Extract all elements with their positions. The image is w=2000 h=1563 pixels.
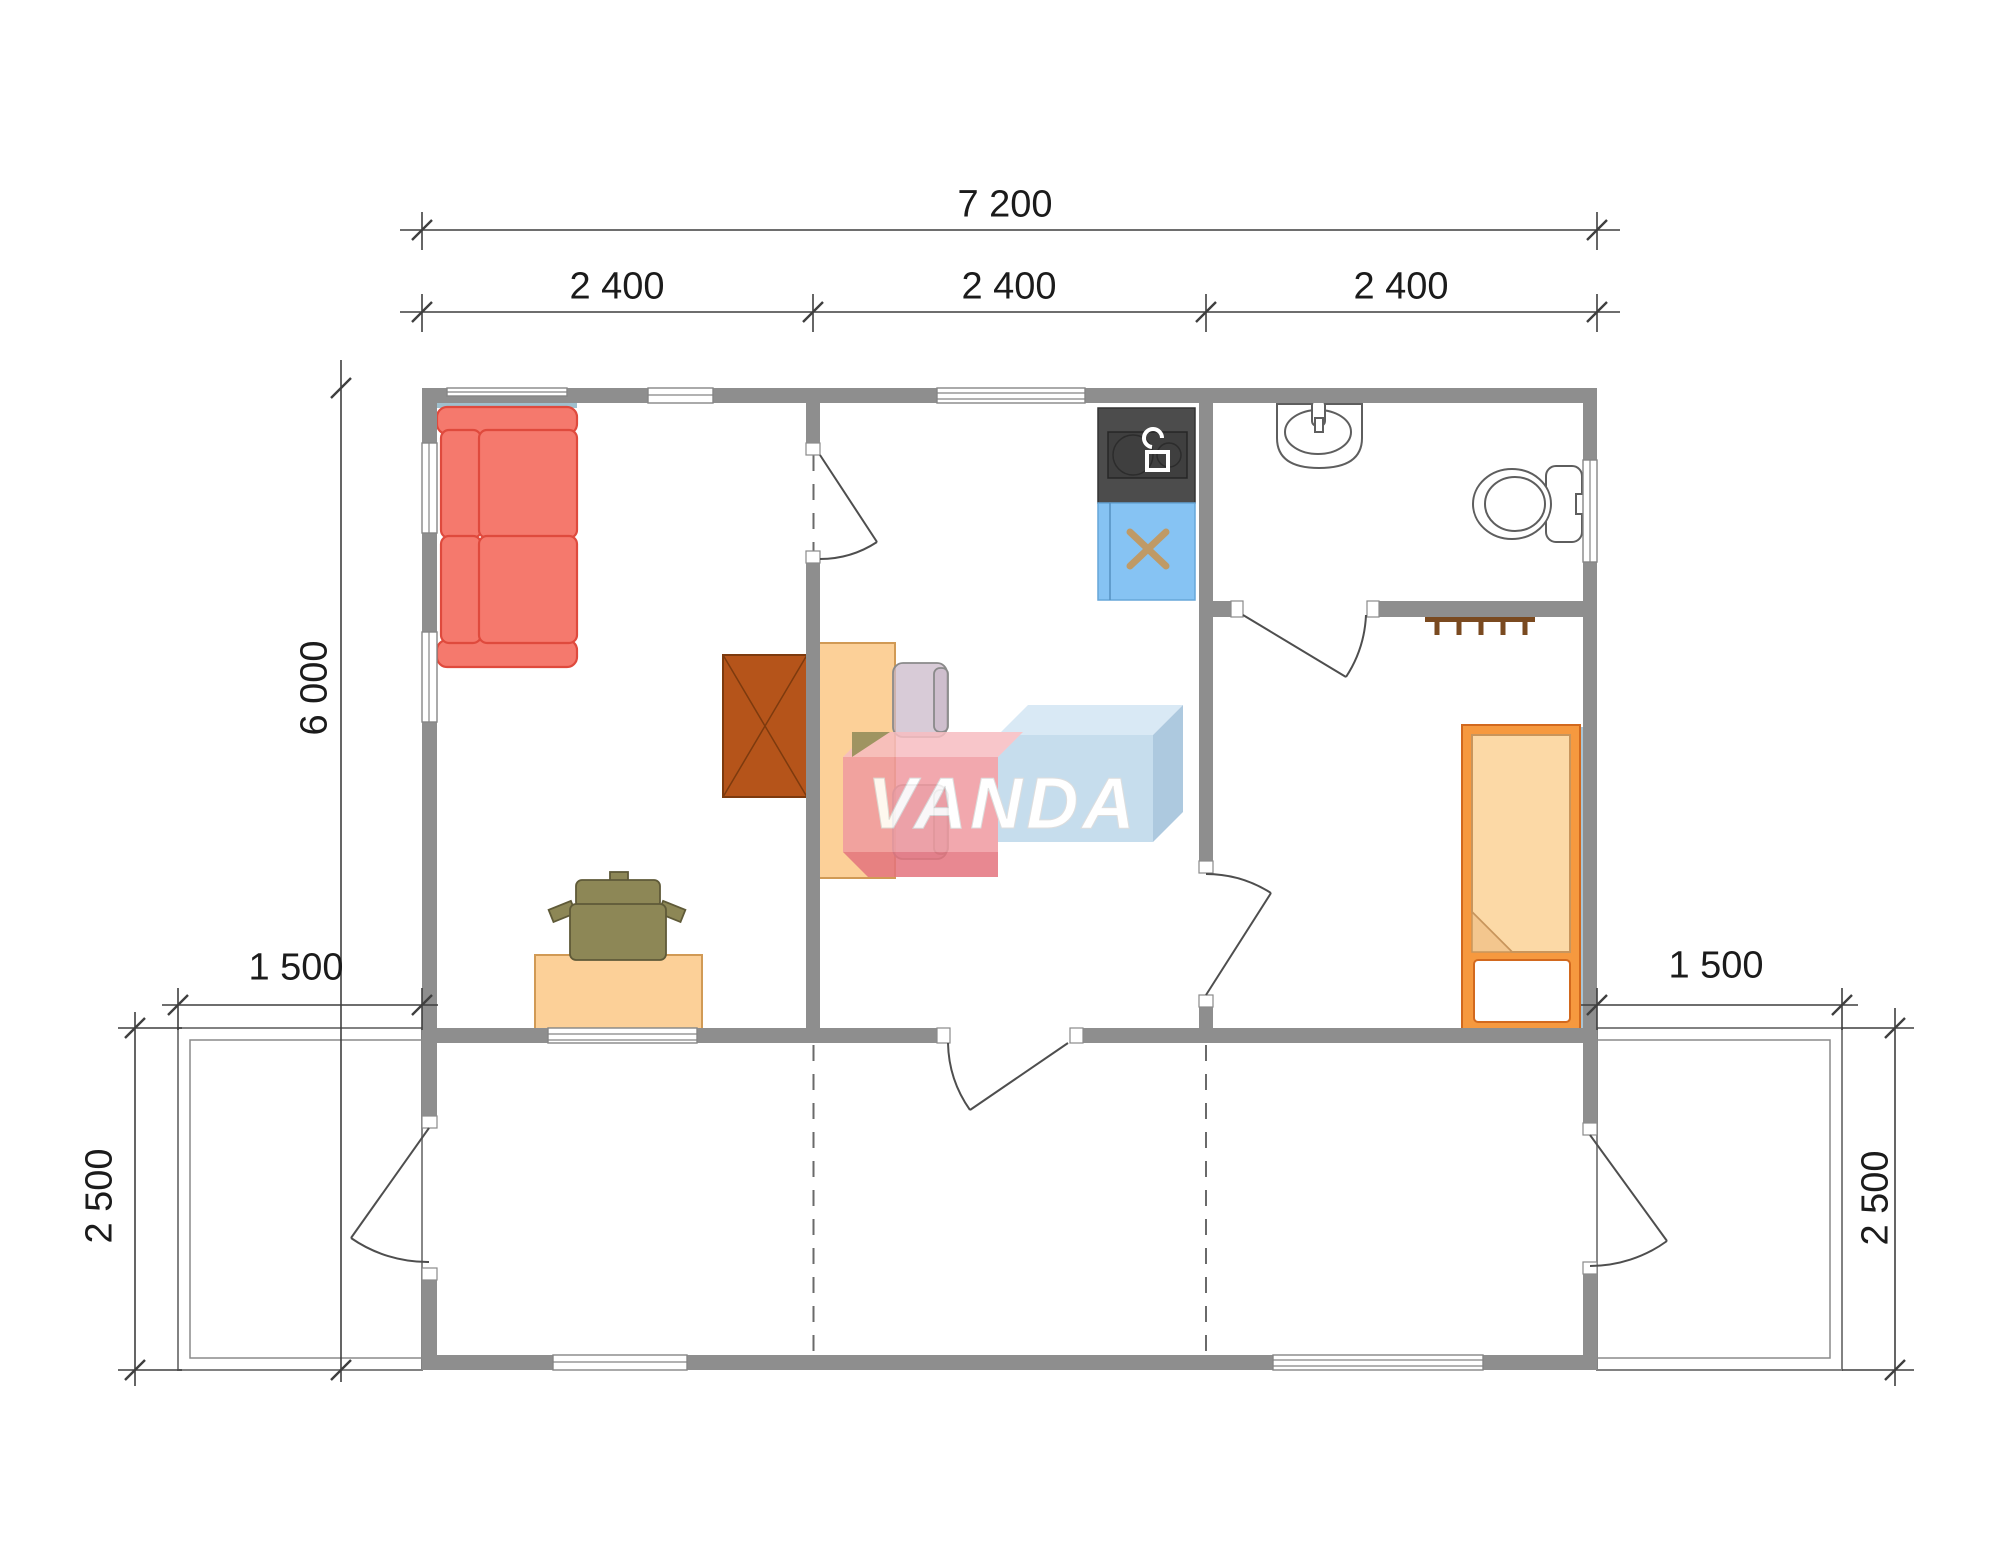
window-desk: [548, 1028, 697, 1043]
door-jamb-caps: [422, 443, 1597, 1280]
window-left-2: [422, 632, 437, 722]
watermark-text: VANDA: [868, 764, 1139, 844]
sofa-icon: [437, 407, 577, 667]
window-bathroom: [1583, 460, 1597, 562]
window-top-small: [648, 388, 713, 403]
floor-plan-drawing: VANDA: [0, 0, 2000, 1563]
coat-rack-icon: [1425, 619, 1535, 635]
dim-terrace-right-width: 1 500: [1668, 945, 1763, 988]
window-left-1: [422, 443, 437, 533]
floor-plan-canvas: VANDA: [0, 0, 2000, 1563]
kitchen-sink-icon: [1098, 503, 1195, 600]
door-entry: [948, 1043, 1068, 1110]
dim-overall-width: 7 200: [957, 184, 1052, 227]
dim-overall-depth: 6 000: [294, 640, 337, 735]
bed-icon: [1462, 725, 1580, 1030]
toilet-icon: [1473, 466, 1584, 542]
walls: [422, 388, 1597, 1370]
door-living-kitchen: [820, 455, 877, 559]
door-bedroom: [1206, 874, 1271, 995]
terrace-right: [1597, 1028, 1842, 1370]
dim-terrace-right-depth: 2 500: [1855, 1150, 1898, 1245]
office-chair-icon: [549, 872, 686, 960]
dim-terrace-left-depth: 2 500: [79, 1148, 122, 1243]
dim-terrace-left-width: 1 500: [248, 947, 343, 990]
desk-icon: [535, 955, 702, 1030]
terrace-left: [178, 1028, 422, 1370]
stove-icon: [1098, 408, 1195, 503]
window-veranda-right: [1273, 1355, 1483, 1370]
dim-module-3: 2 400: [1353, 266, 1448, 309]
dim-module-1: 2 400: [569, 266, 664, 309]
windows: [422, 388, 1597, 1370]
dim-module-2: 2 400: [961, 266, 1056, 309]
washbasin-icon: [1277, 397, 1362, 468]
window-top-sofa: [447, 388, 567, 396]
wardrobe-icon: [723, 655, 807, 797]
window-kitchen: [937, 388, 1085, 403]
window-veranda-left: [553, 1355, 687, 1370]
door-bathroom: [1243, 615, 1366, 677]
